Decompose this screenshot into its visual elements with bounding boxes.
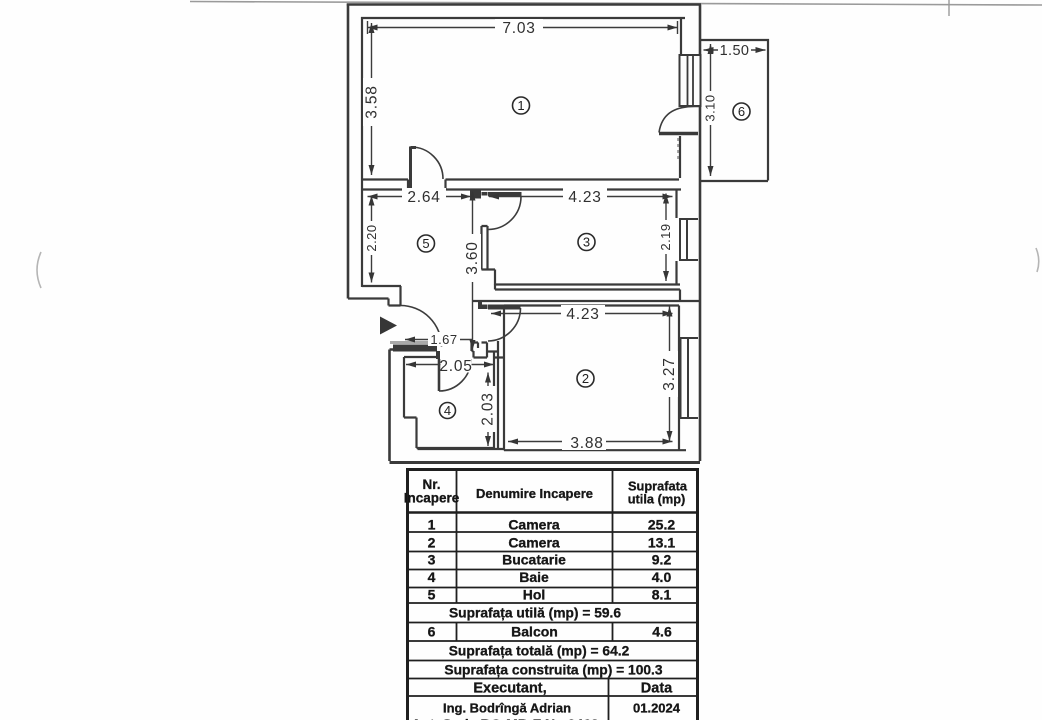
svg-text:2.19: 2.19 xyxy=(658,223,673,250)
svg-text:4.0: 4.0 xyxy=(652,569,672,585)
svg-text:2.05: 2.05 xyxy=(439,358,472,375)
svg-text:Camera: Camera xyxy=(508,535,560,551)
svg-text:Balcon: Balcon xyxy=(511,624,558,640)
svg-text:4: 4 xyxy=(444,403,451,418)
svg-text:3.10: 3.10 xyxy=(703,94,718,121)
svg-text:01.2024: 01.2024 xyxy=(633,701,681,716)
svg-text:Executant,: Executant, xyxy=(473,681,546,697)
svg-text:8.1: 8.1 xyxy=(652,587,672,603)
svg-text:Denumire Incapere: Denumire Incapere xyxy=(476,486,593,501)
svg-text:3: 3 xyxy=(583,235,590,250)
svg-text:Hol: Hol xyxy=(523,587,546,603)
svg-text:4: 4 xyxy=(428,569,436,585)
svg-text:3.27: 3.27 xyxy=(661,357,678,390)
svg-text:Suprafața totală (mp) = 64.2: Suprafața totală (mp) = 64.2 xyxy=(449,644,630,659)
svg-text:4.23: 4.23 xyxy=(568,189,601,206)
svg-text:13.1: 13.1 xyxy=(648,535,675,551)
svg-text:6: 6 xyxy=(738,104,745,119)
svg-text:1: 1 xyxy=(517,98,524,113)
svg-text:utila (mp): utila (mp) xyxy=(628,492,686,507)
svg-text:1.67: 1.67 xyxy=(430,332,457,347)
svg-text:5: 5 xyxy=(428,587,436,603)
svg-text:2.64: 2.64 xyxy=(407,189,440,206)
svg-text:Incapere: Incapere xyxy=(404,491,460,506)
svg-text:Bucatarie: Bucatarie xyxy=(502,552,566,568)
svg-text:5: 5 xyxy=(422,236,429,251)
svg-text:4.6: 4.6 xyxy=(652,624,672,640)
svg-text:1: 1 xyxy=(428,517,436,533)
svg-text:6: 6 xyxy=(428,624,436,640)
svg-text:2.20: 2.20 xyxy=(364,224,379,251)
svg-text:Suprafața construita (mp) = 10: Suprafața construita (mp) = 100.3 xyxy=(444,663,662,678)
svg-text:25.2: 25.2 xyxy=(648,517,675,533)
svg-text:Baie: Baie xyxy=(519,569,549,585)
svg-text:3.58: 3.58 xyxy=(364,85,381,118)
svg-text:2.03: 2.03 xyxy=(480,392,497,425)
svg-text:3.88: 3.88 xyxy=(570,435,603,452)
svg-text:Aut. Seria RO-MR-F Nr. 0469: Aut. Seria RO-MR-F Nr. 0469 xyxy=(411,716,599,720)
svg-text:3: 3 xyxy=(428,552,436,568)
svg-text:4.23: 4.23 xyxy=(566,306,599,323)
svg-text:Suprafața utilă (mp) = 59.6: Suprafața utilă (mp) = 59.6 xyxy=(449,606,621,621)
svg-text:3.60: 3.60 xyxy=(464,241,481,274)
svg-text:Camera: Camera xyxy=(508,517,560,533)
svg-text:2: 2 xyxy=(428,535,436,551)
svg-text:Data: Data xyxy=(641,681,673,697)
svg-text:2: 2 xyxy=(582,371,589,386)
svg-text:Ing. Bodrîngă Adrian: Ing. Bodrîngă Adrian xyxy=(443,701,571,716)
svg-text:1.50: 1.50 xyxy=(720,43,750,59)
svg-text:7.03: 7.03 xyxy=(502,20,535,37)
svg-text:9.2: 9.2 xyxy=(652,552,672,568)
